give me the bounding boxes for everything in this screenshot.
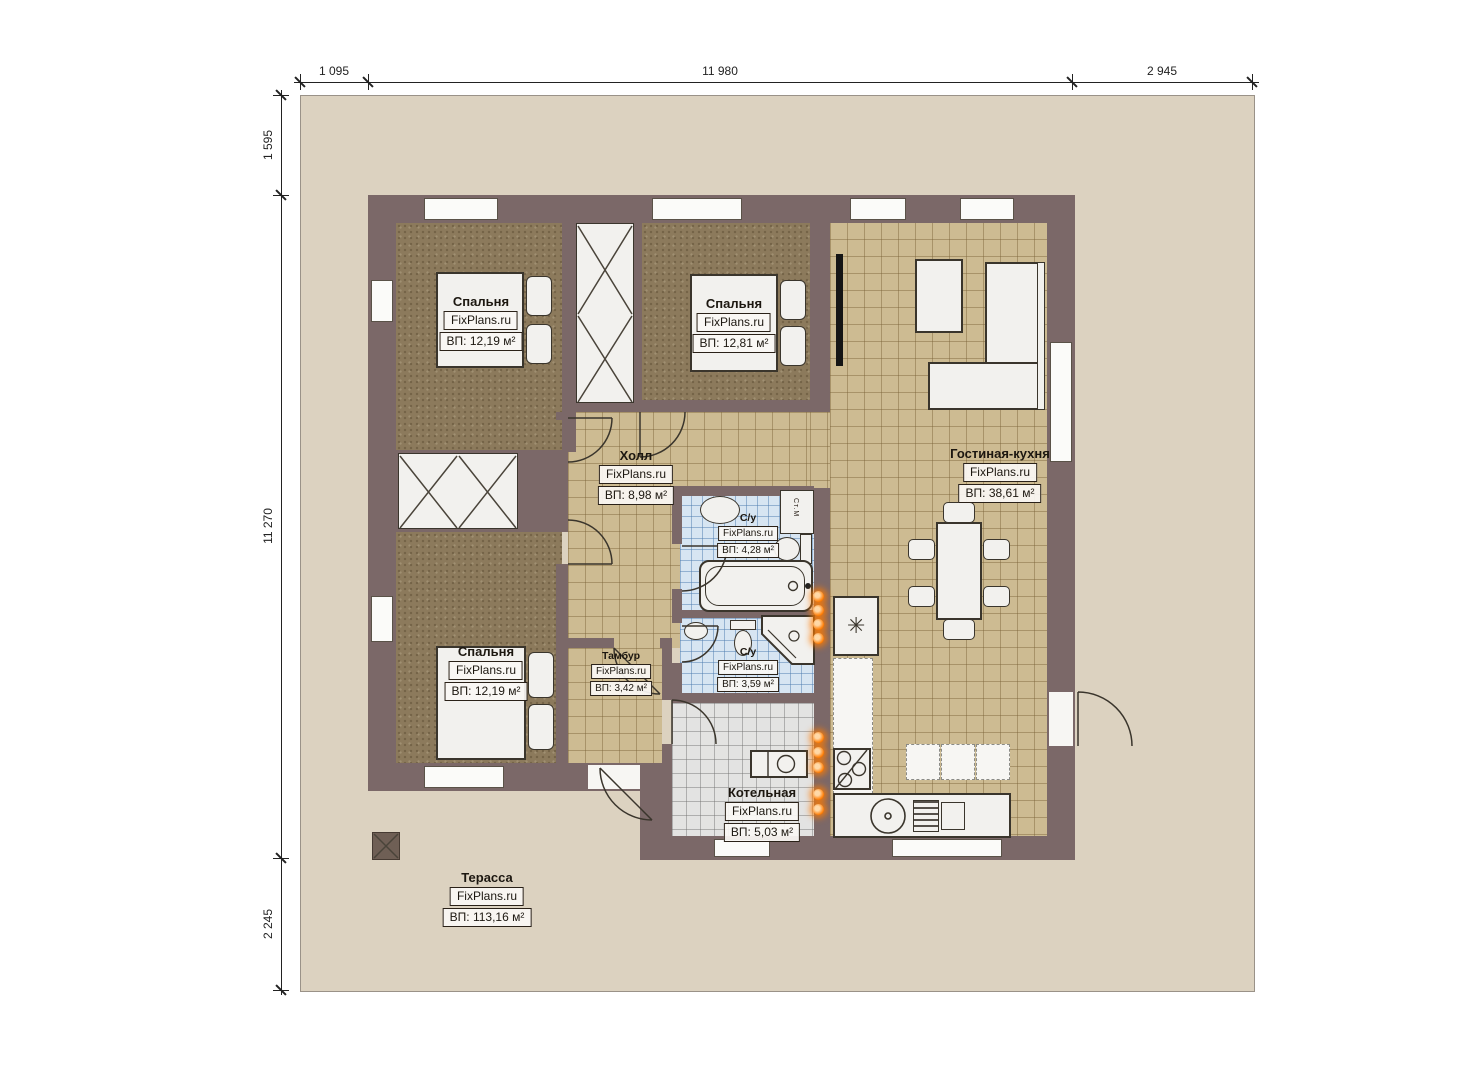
room-area: ВП: 12,81 м² <box>693 334 776 353</box>
wardrobe <box>398 453 518 529</box>
window <box>850 198 906 220</box>
watermark: FixPlans.ru <box>591 664 651 679</box>
room-name: Котельная <box>724 785 800 800</box>
window <box>1050 342 1072 462</box>
dishwasher <box>913 800 939 832</box>
room-area: ВП: 12,19 м² <box>445 682 528 701</box>
chair <box>908 539 935 560</box>
wall <box>662 644 672 700</box>
room-label-bedroom-2: Спальня FixPlans.ru ВП: 12,81 м² <box>693 296 776 353</box>
pillow <box>528 704 554 750</box>
dining-table <box>936 522 982 620</box>
wall <box>556 564 568 763</box>
room-label-terrace: Терасса FixPlans.ru ВП: 113,16 м² <box>443 870 532 927</box>
heating-valve <box>813 732 824 743</box>
dimension-value: 11 270 <box>261 508 275 544</box>
bathtub-inner <box>705 566 805 606</box>
heating-valve <box>813 747 824 758</box>
heating-valve <box>813 789 824 800</box>
heating-valve <box>813 762 824 773</box>
oven <box>941 802 965 830</box>
wall <box>672 693 814 703</box>
watermark: FixPlans.ru <box>599 465 673 484</box>
room-name: Спальня <box>445 644 528 659</box>
sofa-section <box>928 362 1040 410</box>
pillow <box>780 326 806 366</box>
sofa-back <box>1037 262 1045 410</box>
wardrobe <box>576 223 634 403</box>
terrace-pillar <box>372 832 400 860</box>
toilet-tank <box>730 620 756 630</box>
room-area: ВП: 12,19 м² <box>440 332 523 351</box>
fridge-icon: ✳ <box>847 615 865 637</box>
room-area: ВП: 3,42 м² <box>590 681 652 696</box>
washing-machine-label: Ст.М <box>792 498 799 517</box>
watermark: FixPlans.ru <box>449 661 523 680</box>
room-label-bedroom-3: Спальня FixPlans.ru ВП: 12,19 м² <box>445 644 528 701</box>
room-area: ВП: 5,03 м² <box>724 823 800 842</box>
chair <box>943 619 975 640</box>
wall <box>640 836 1075 860</box>
watermark: FixPlans.ru <box>718 660 778 675</box>
wall <box>660 638 672 648</box>
wall <box>662 744 672 763</box>
room-area: ВП: 8,98 м² <box>598 486 674 505</box>
kitchen-island-cabinet <box>941 744 975 780</box>
room-name: Терасса <box>443 870 532 885</box>
heating-valve <box>813 605 824 616</box>
watermark: FixPlans.ru <box>697 313 771 332</box>
chair <box>983 586 1010 607</box>
room-label-bathroom-1: С/у FixPlans.ru ВП: 4,28 м² <box>717 512 779 558</box>
wall <box>1047 195 1075 860</box>
window <box>371 596 393 642</box>
wall <box>568 403 634 412</box>
room-label-vestibule: Тамбур FixPlans.ru ВП: 3,42 м² <box>590 650 652 696</box>
coffee-table <box>915 259 963 333</box>
watermark: FixPlans.ru <box>718 526 778 541</box>
watermark: FixPlans.ru <box>963 463 1037 482</box>
room-label-bathroom-2: С/у FixPlans.ru ВП: 3,59 м² <box>717 646 779 692</box>
terrace-door-opening <box>1049 692 1073 746</box>
window <box>424 766 504 788</box>
room-name: Спальня <box>440 294 523 309</box>
boiler <box>750 750 808 778</box>
dimension-value: 1 595 <box>261 130 275 160</box>
window <box>424 198 498 220</box>
chair <box>908 586 935 607</box>
dimension-value: 1 095 <box>319 64 349 78</box>
pillow <box>528 652 554 698</box>
room-label-living-kitchen: Гостиная-кухня FixPlans.ru ВП: 38,61 м² <box>950 446 1050 503</box>
room-area: ВП: 3,59 м² <box>717 677 779 692</box>
room-label-boiler-room: Котельная FixPlans.ru ВП: 5,03 м² <box>724 785 800 842</box>
hall-passage-floor <box>810 412 830 488</box>
room-name: Спальня <box>693 296 776 311</box>
window <box>892 839 1002 857</box>
chair <box>943 502 975 523</box>
dimension-line-top <box>294 82 1259 83</box>
room-area: ВП: 113,16 м² <box>443 908 532 927</box>
heating-valve <box>813 619 824 630</box>
window <box>960 198 1014 220</box>
watermark: FixPlans.ru <box>725 802 799 821</box>
heating-valve <box>813 633 824 644</box>
watermark: FixPlans.ru <box>444 311 518 330</box>
sink <box>684 622 708 640</box>
stove <box>833 748 871 790</box>
tv <box>836 254 843 366</box>
watermark: FixPlans.ru <box>450 887 524 906</box>
chair <box>983 539 1010 560</box>
kitchen-island-cabinet <box>976 744 1010 780</box>
room-name: С/у <box>717 646 779 658</box>
pillow <box>526 276 552 316</box>
room-name: Гостиная-кухня <box>950 446 1050 461</box>
dimension-value: 2 945 <box>1147 64 1177 78</box>
room-name: Тамбур <box>590 650 652 662</box>
room-area: ВП: 4,28 м² <box>717 543 779 558</box>
floor-plan: 1 095 11 980 2 945 1 595 11 270 2 245 <box>0 0 1473 1080</box>
heating-valve <box>813 804 824 815</box>
room-name: Холл <box>598 448 674 463</box>
room-label-hall: Холл FixPlans.ru ВП: 8,98 м² <box>598 448 674 505</box>
wall <box>634 400 812 412</box>
room-area: ВП: 38,61 м² <box>959 484 1042 503</box>
entrance-door-opening <box>588 765 640 789</box>
wall <box>814 488 830 838</box>
pillow <box>780 280 806 320</box>
window <box>652 198 742 220</box>
pillow <box>526 324 552 364</box>
wall <box>556 412 568 420</box>
heating-valve <box>813 591 824 602</box>
room-label-bedroom-1: Спальня FixPlans.ru ВП: 12,19 м² <box>440 294 523 351</box>
kitchen-island-cabinet <box>906 744 940 780</box>
room-name: С/у <box>717 512 779 524</box>
dimension-value: 11 980 <box>702 64 738 78</box>
wall <box>634 222 642 403</box>
window <box>371 280 393 322</box>
wall <box>556 638 614 648</box>
wall <box>810 222 830 412</box>
dimension-value: 2 245 <box>261 909 275 939</box>
